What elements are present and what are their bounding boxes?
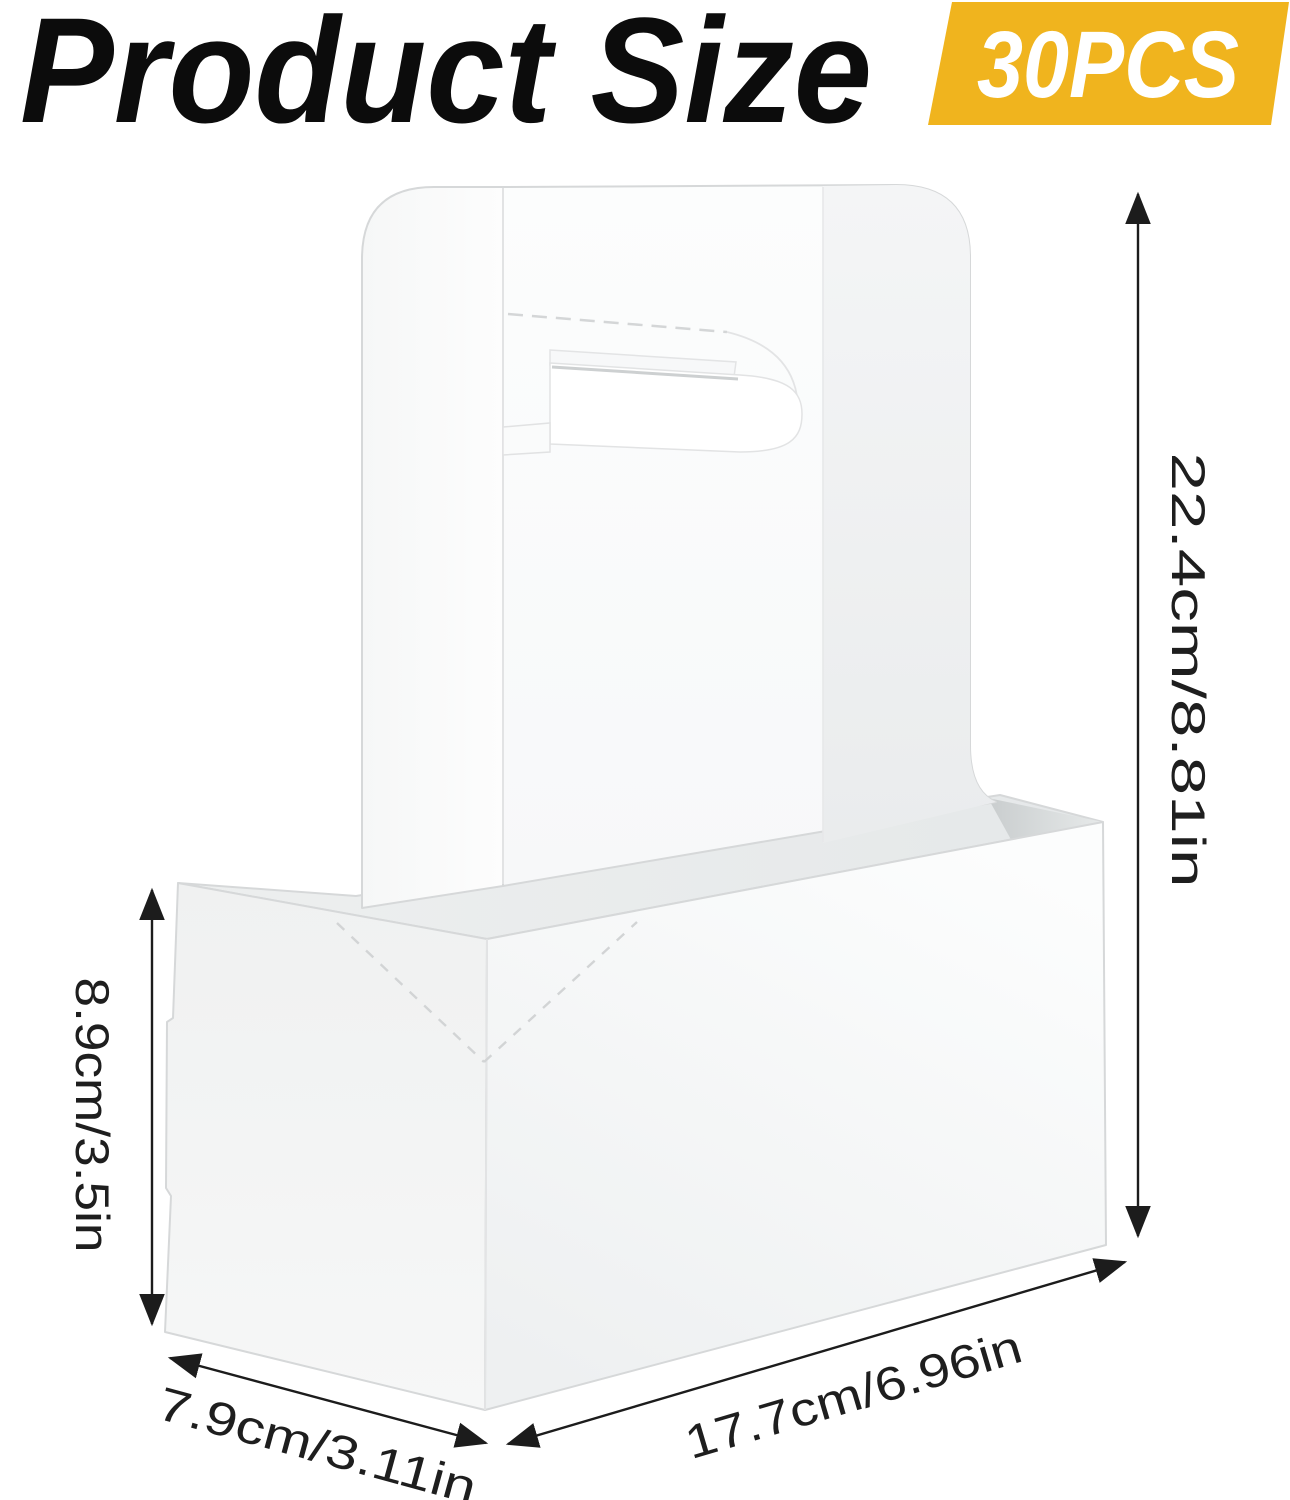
handle-back-panel (362, 187, 503, 908)
box-left-face (165, 883, 487, 1410)
product-size-infographic: Product Size 30PCS (0, 0, 1290, 1500)
product-size-diagram: Product Size 30PCS (0, 0, 1290, 1500)
box-height-label: 8.9cm/3.5in (66, 978, 119, 1253)
page-title: Product Size (20, 0, 872, 154)
handle-lock-notch (503, 423, 550, 455)
overall-height-label: 22.4cm/8.81in (1162, 453, 1215, 888)
cup-carrier-illustration (165, 185, 1106, 1410)
quantity-badge-label: 30PCS (977, 12, 1239, 118)
